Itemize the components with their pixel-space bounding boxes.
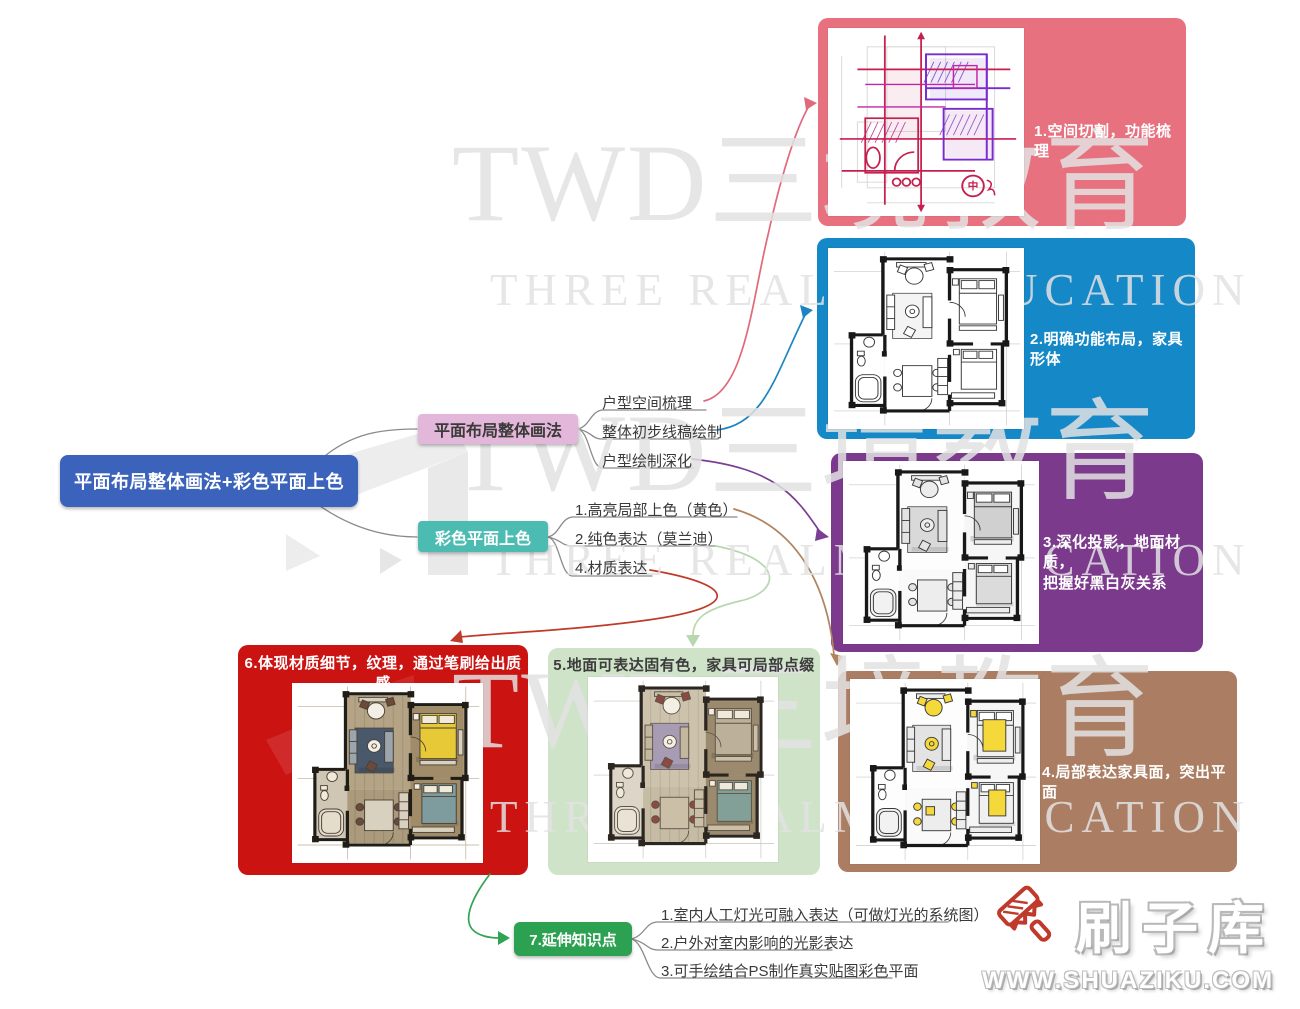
label-space-sorting[interactable]: 户型空间梳理 xyxy=(602,392,692,413)
panel3-caption: 3.深化投影，地面材质， 把握好黑白灰关系 xyxy=(1043,533,1211,594)
floor-plan-sketch-image: 中 xyxy=(828,28,1024,216)
paint-brush-icon xyxy=(992,885,1066,964)
panel-step3-shadow-material[interactable]: 3.深化投影，地面材质， 把握好黑白灰关系 xyxy=(831,453,1203,652)
branch-layout-label: 平面布局整体画法 xyxy=(434,417,562,441)
label-drawing-deepening[interactable]: 户型绘制深化 xyxy=(602,450,692,471)
panel-step5-floor-color[interactable]: 5.地面可表达固有色，家具可局部点缀 xyxy=(548,648,820,875)
panel2-caption: 2.明确功能布局，家具形体 xyxy=(1030,330,1195,371)
branch-node-color-painting[interactable]: 彩色平面上色 xyxy=(418,521,548,552)
floor-plan-grayscale-image xyxy=(843,461,1039,644)
site-name: 刷子库 xyxy=(1076,884,1274,965)
site-url: WWW.SHUAZIKU.COM xyxy=(982,967,1274,995)
panel6-caption: 6.体现材质细节，纹理，通过笔刷给出质感 xyxy=(238,654,528,695)
floor-plan-yellow-accent-image xyxy=(850,679,1040,864)
label-ext-ps-texture-plan[interactable]: 3.可手绘结合PS制作真实贴图彩色平面 xyxy=(661,960,919,981)
panel5-caption: 5.地面可表达固有色，家具可局部点缀 xyxy=(548,656,820,676)
root-node-label: 平面布局整体画法+彩色平面上色 xyxy=(74,468,344,494)
floor-plan-soft-color-image xyxy=(588,677,778,862)
extension-node-label: 7.延伸知识点 xyxy=(529,929,617,950)
label-ext-indoor-lighting[interactable]: 1.室内人工灯光可融入表达（可做灯光的系统图） xyxy=(661,904,989,925)
mindmap-canvas: 中 1.空间切割，功能梳理 xyxy=(0,0,1300,1009)
floor-plan-textured-image xyxy=(292,683,483,863)
extension-node[interactable]: 7.延伸知识点 xyxy=(514,922,632,956)
branch-node-layout-method[interactable]: 平面布局整体画法 xyxy=(418,414,578,444)
svg-text:中: 中 xyxy=(968,180,979,193)
label-initial-line-draft[interactable]: 整体初步线稿绘制 xyxy=(602,421,722,442)
label-ext-outdoor-light-shadow[interactable]: 2.户外对室内影响的光影表达 xyxy=(661,932,854,953)
branch-color-label: 彩色平面上色 xyxy=(435,525,531,549)
label-material-expression[interactable]: 4.材质表达 xyxy=(575,557,648,578)
panel1-caption: 1.空间切割，功能梳理 xyxy=(1034,122,1186,163)
panel-step6-texture-detail[interactable]: 6.体现材质细节，纹理，通过笔刷给出质感 xyxy=(238,645,528,875)
label-pure-color-morandi[interactable]: 2.纯色表达（莫兰迪） xyxy=(575,528,723,549)
floor-plan-lineart-image xyxy=(828,248,1024,429)
panel-step4-furniture-accent[interactable]: 4.局部表达家具面，突出平面 xyxy=(838,671,1237,872)
panel-step1-space-cutting[interactable]: 中 1.空间切割，功能梳理 xyxy=(818,18,1186,226)
root-node[interactable]: 平面布局整体画法+彩色平面上色 xyxy=(60,455,358,507)
label-highlight-partial-color[interactable]: 1.高亮局部上色（黄色） xyxy=(575,499,738,520)
panel4-caption: 4.局部表达家具面，突出平面 xyxy=(1042,763,1237,804)
site-logo[interactable]: 刷子库 WWW.SHUAZIKU.COM xyxy=(982,884,1274,995)
panel-step2-function-layout[interactable]: 2.明确功能布局，家具形体 xyxy=(817,238,1195,439)
